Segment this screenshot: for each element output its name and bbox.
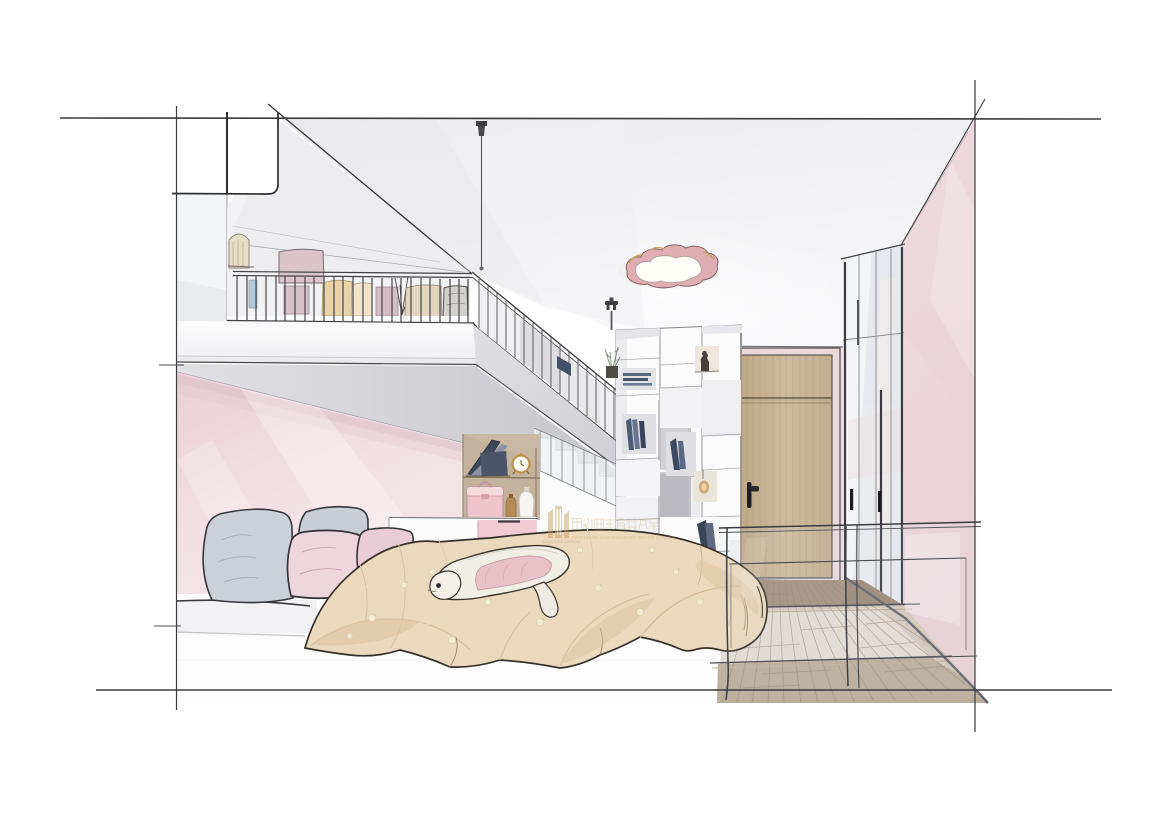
svg-text:MOCHUAN JIAN BUILDING SPACE DE: MOCHUAN JIAN BUILDING SPACE DESIGN <box>572 535 676 540</box>
